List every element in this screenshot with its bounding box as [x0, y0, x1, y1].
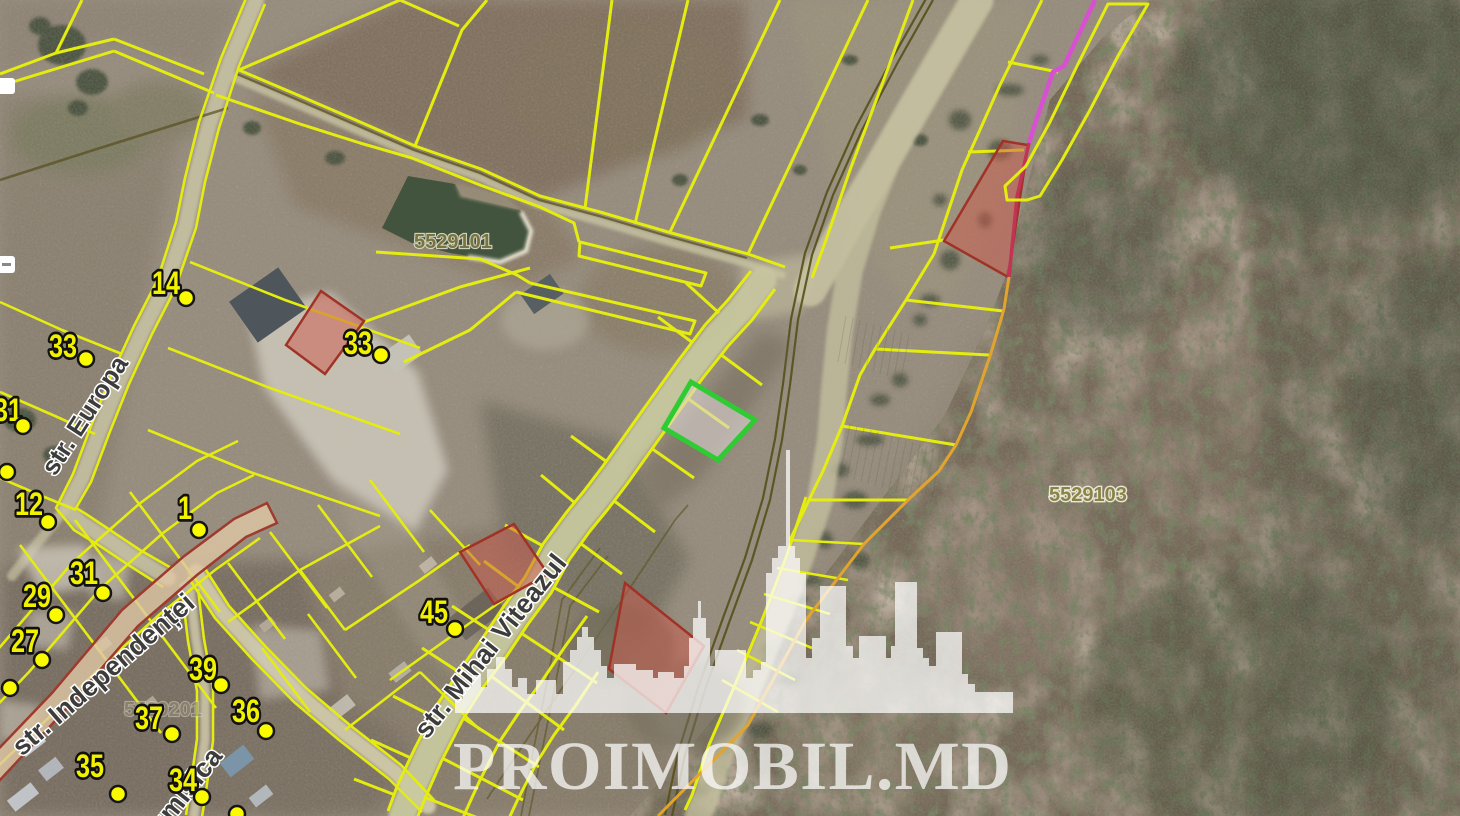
- svg-text:29: 29: [23, 578, 51, 614]
- svg-text:33: 33: [344, 325, 372, 361]
- svg-text:37: 37: [135, 700, 163, 736]
- svg-text:5529101: 5529101: [414, 231, 492, 253]
- svg-text:45: 45: [420, 594, 448, 630]
- svg-text:36: 36: [232, 693, 260, 729]
- svg-text:27: 27: [11, 623, 39, 659]
- svg-text:14: 14: [152, 265, 180, 301]
- svg-text:12: 12: [15, 486, 43, 522]
- svg-text:1: 1: [178, 490, 192, 526]
- svg-text:35: 35: [76, 748, 104, 784]
- svg-text:33: 33: [49, 328, 77, 364]
- svg-text:34: 34: [169, 762, 197, 798]
- svg-text:31: 31: [70, 555, 98, 591]
- svg-text:PROIMOBIL.MD: PROIMOBIL.MD: [453, 728, 1011, 804]
- svg-text:5529103: 5529103: [1049, 484, 1127, 506]
